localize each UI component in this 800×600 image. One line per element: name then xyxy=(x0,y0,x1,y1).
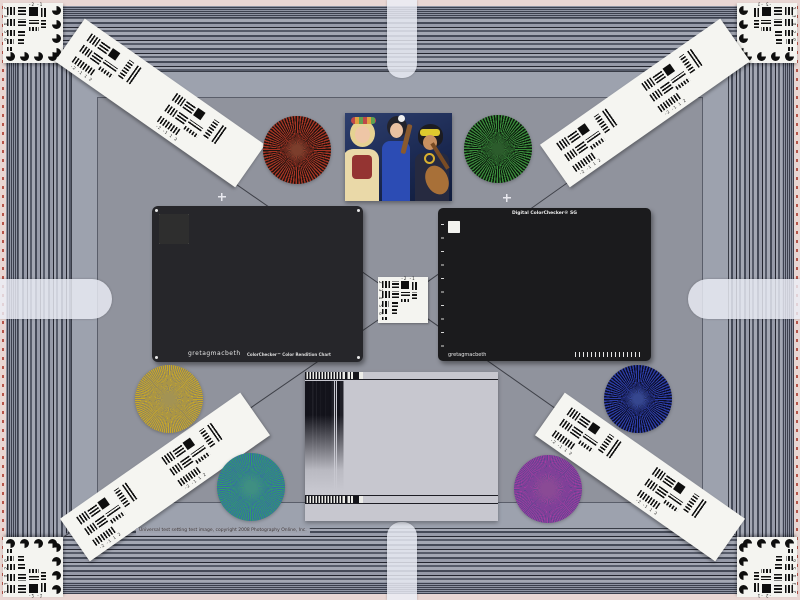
pacman-mark xyxy=(52,34,61,43)
resolution-bars xyxy=(754,20,759,28)
pacman-mark xyxy=(771,52,780,61)
resolution-bars xyxy=(774,585,782,593)
colorchecker-classic-chart: gretagmacbeth ColorChecker™ Color Rendit… xyxy=(152,206,363,362)
resolution-bars xyxy=(18,30,25,36)
resolution-bars xyxy=(401,292,410,296)
pacman-mark xyxy=(52,557,61,566)
pacman-mark xyxy=(739,585,748,594)
pacman-mark xyxy=(743,539,752,548)
magenta-siemens-star xyxy=(514,455,582,523)
resolution-bars xyxy=(775,564,782,570)
pacman-mark xyxy=(739,34,748,43)
resolution-bars xyxy=(564,148,578,161)
digital-colorchecker-sg-chart: Digital ColorChecker® SG gretagmacbeth xyxy=(438,208,651,361)
resolution-bars xyxy=(570,426,584,439)
center-resolution-card: -2 -12 3 4 5 6 xyxy=(378,277,428,323)
usaf-label: 2 3 4 5 6 xyxy=(378,281,382,317)
resolution-bars xyxy=(18,19,26,26)
usaf-label: -2 -1 xyxy=(401,277,415,281)
resolution-bars xyxy=(787,549,793,553)
resolution-bars xyxy=(29,20,39,24)
gray-tab-top xyxy=(387,0,417,78)
sweep-steps xyxy=(305,505,498,521)
tick-segment xyxy=(305,496,344,503)
sg-ruler-scale xyxy=(575,352,641,357)
color-patch xyxy=(448,221,460,233)
sg-chart-title: Digital ColorChecker® SG xyxy=(438,212,651,217)
photo-left-figure-bodice xyxy=(352,155,372,179)
colorchecker-brand: gretagmacbeth xyxy=(188,351,241,357)
black-square xyxy=(762,584,771,593)
resolution-bars xyxy=(392,281,399,288)
resolution-bars xyxy=(787,47,793,51)
registration-dot xyxy=(357,356,360,359)
pacman-mark xyxy=(6,539,15,548)
resolution-bars xyxy=(175,112,189,125)
resolution-bars xyxy=(7,556,14,561)
resolution-bars xyxy=(18,574,26,581)
usaf-label: 2 3 4 5 6 xyxy=(3,7,7,43)
gray-tab-bottom xyxy=(387,522,417,600)
resolution-bars xyxy=(761,576,771,580)
black-square xyxy=(762,7,771,16)
pacman-mark xyxy=(739,557,748,566)
usaf-label: 2 3 4 5 6 xyxy=(793,7,797,43)
black-square xyxy=(108,48,121,61)
resolution-bars xyxy=(7,39,14,44)
resolution-bars xyxy=(41,20,46,28)
green-siemens-star xyxy=(464,115,532,183)
usaf-label: -2 -1 xyxy=(757,3,771,7)
sg-grid xyxy=(448,221,642,355)
resolution-bars xyxy=(392,301,398,306)
sweep-ticks-top xyxy=(305,372,498,380)
resolution-bars xyxy=(7,549,13,553)
usaf-label: 2 3 4 5 6 xyxy=(793,557,797,593)
usaf-label: -2 -1 xyxy=(29,3,43,7)
registration-dot xyxy=(357,209,360,212)
resolution-bars xyxy=(29,27,39,31)
sg-brand: gretagmacbeth xyxy=(448,353,486,358)
usaf-label: -2 -1 xyxy=(757,593,771,597)
resolution-bars xyxy=(29,569,39,573)
photo-left-figure-face xyxy=(355,126,370,143)
pacman-mark xyxy=(20,52,29,61)
resolution-bars xyxy=(7,47,13,51)
pacman-mark xyxy=(52,20,61,29)
tick-segment xyxy=(305,372,344,379)
test-chart-scene: -2 -12 3 4 5 6 -2 -12 3 4 5 6 -2 -12 3 4… xyxy=(0,0,800,600)
resolution-bars xyxy=(649,89,663,102)
usaf-corner-card-bottom-right: -2 -12 3 4 5 6 xyxy=(737,537,797,597)
photo-middle-figure-face xyxy=(390,123,403,138)
black-square xyxy=(588,422,601,435)
registration-dot xyxy=(155,356,158,359)
usaf-label: 2 3 4 5 6 xyxy=(3,557,7,593)
black-square xyxy=(29,7,38,16)
red-siemens-star xyxy=(263,116,331,184)
usaf-label: -2 -1 xyxy=(29,593,43,597)
black-square xyxy=(29,584,38,593)
pacman-mark xyxy=(6,52,15,61)
resolution-bars xyxy=(754,8,759,17)
blue-siemens-star xyxy=(604,365,672,433)
plus-registration-mark xyxy=(218,193,226,201)
sg-row-ticks xyxy=(441,224,444,354)
resolution-bars xyxy=(775,30,782,36)
resolution-bars xyxy=(180,455,194,468)
pacman-mark xyxy=(739,571,748,580)
resolution-bars xyxy=(18,564,25,570)
resolution-bars xyxy=(774,19,782,26)
sweep-fade-right xyxy=(305,381,498,495)
resolution-bars xyxy=(776,39,782,44)
resolution-bars xyxy=(7,574,16,581)
resolution-bars xyxy=(84,522,98,535)
photo-white-flower xyxy=(398,115,405,122)
resolution-bars xyxy=(95,515,109,528)
resolution-bars xyxy=(660,81,674,94)
pacman-mark xyxy=(785,52,794,61)
resolution-bars xyxy=(761,20,771,24)
resolution-bars xyxy=(90,52,104,65)
color-patch xyxy=(159,214,189,244)
resolution-bars xyxy=(169,463,183,476)
pacman-mark xyxy=(52,585,61,594)
resolution-bars xyxy=(754,583,759,592)
resolution-bars xyxy=(774,574,782,581)
sweep-bars xyxy=(305,381,498,495)
copyright-caption: Universal test setting test image, copyr… xyxy=(136,528,310,535)
resolution-bars xyxy=(18,556,24,561)
gray-tab-left xyxy=(0,279,112,319)
resolution-bars xyxy=(7,30,15,36)
pacman-mark xyxy=(34,52,43,61)
resolution-bars xyxy=(761,27,771,31)
pacman-mark xyxy=(739,20,748,29)
black-square xyxy=(401,281,409,289)
usaf-corner-card-top-right: -2 -12 3 4 5 6 xyxy=(737,3,797,63)
resolution-bars xyxy=(18,7,26,15)
resolution-bars xyxy=(7,564,15,570)
pacman-mark xyxy=(757,539,766,548)
black-square xyxy=(673,482,686,495)
resolution-bars xyxy=(29,576,39,580)
gold-siemens-star xyxy=(135,365,203,433)
resolution-bars xyxy=(382,317,387,321)
pacman-mark xyxy=(52,6,61,15)
resolution-bars xyxy=(412,292,417,299)
pacman-mark xyxy=(48,539,57,548)
resolution-bars xyxy=(41,583,46,592)
resolution-bars xyxy=(401,299,410,303)
resolution-bars xyxy=(18,585,26,593)
teal-siemens-star xyxy=(217,453,285,521)
resolution-bars xyxy=(761,569,771,573)
resolution-bars xyxy=(7,585,16,593)
pacman-mark xyxy=(739,6,748,15)
plus-registration-mark xyxy=(503,194,511,202)
photo-flower-crown xyxy=(351,117,376,124)
resolution-bars xyxy=(754,572,759,580)
registration-dot xyxy=(155,209,158,212)
resolution-bars xyxy=(655,486,669,499)
resolution-bars xyxy=(7,7,16,15)
colorchecker-title: ColorChecker™ Color Rendition Chart xyxy=(247,353,331,357)
frequency-sweep-chart xyxy=(305,372,498,521)
resolution-bars xyxy=(392,309,397,314)
usaf-corner-card-top-left: -2 -12 3 4 5 6 xyxy=(3,3,63,63)
colorchecker-grid xyxy=(159,214,356,343)
musicians-photo xyxy=(345,113,452,201)
resolution-bars xyxy=(41,572,46,580)
pacman-mark xyxy=(771,539,780,548)
resolution-bars xyxy=(575,141,589,154)
resolution-bars xyxy=(412,282,417,290)
resolution-bars xyxy=(774,7,782,15)
pacman-mark xyxy=(20,539,29,548)
pacman-mark xyxy=(785,539,794,548)
resolution-bars xyxy=(7,19,16,26)
resolution-bars xyxy=(392,291,399,297)
pacman-mark xyxy=(34,539,43,548)
photo-gold-necklace xyxy=(424,153,435,164)
pacman-mark xyxy=(757,52,766,61)
pacman-mark xyxy=(52,571,61,580)
gray-tab-right xyxy=(688,279,800,319)
resolution-bars xyxy=(18,39,24,44)
usaf-corner-card-bottom-left: -2 -12 3 4 5 6 xyxy=(3,537,63,597)
black-square xyxy=(193,108,206,121)
sweep-ticks-bottom xyxy=(305,495,498,504)
resolution-bars xyxy=(41,8,46,17)
resolution-bars xyxy=(776,556,782,561)
